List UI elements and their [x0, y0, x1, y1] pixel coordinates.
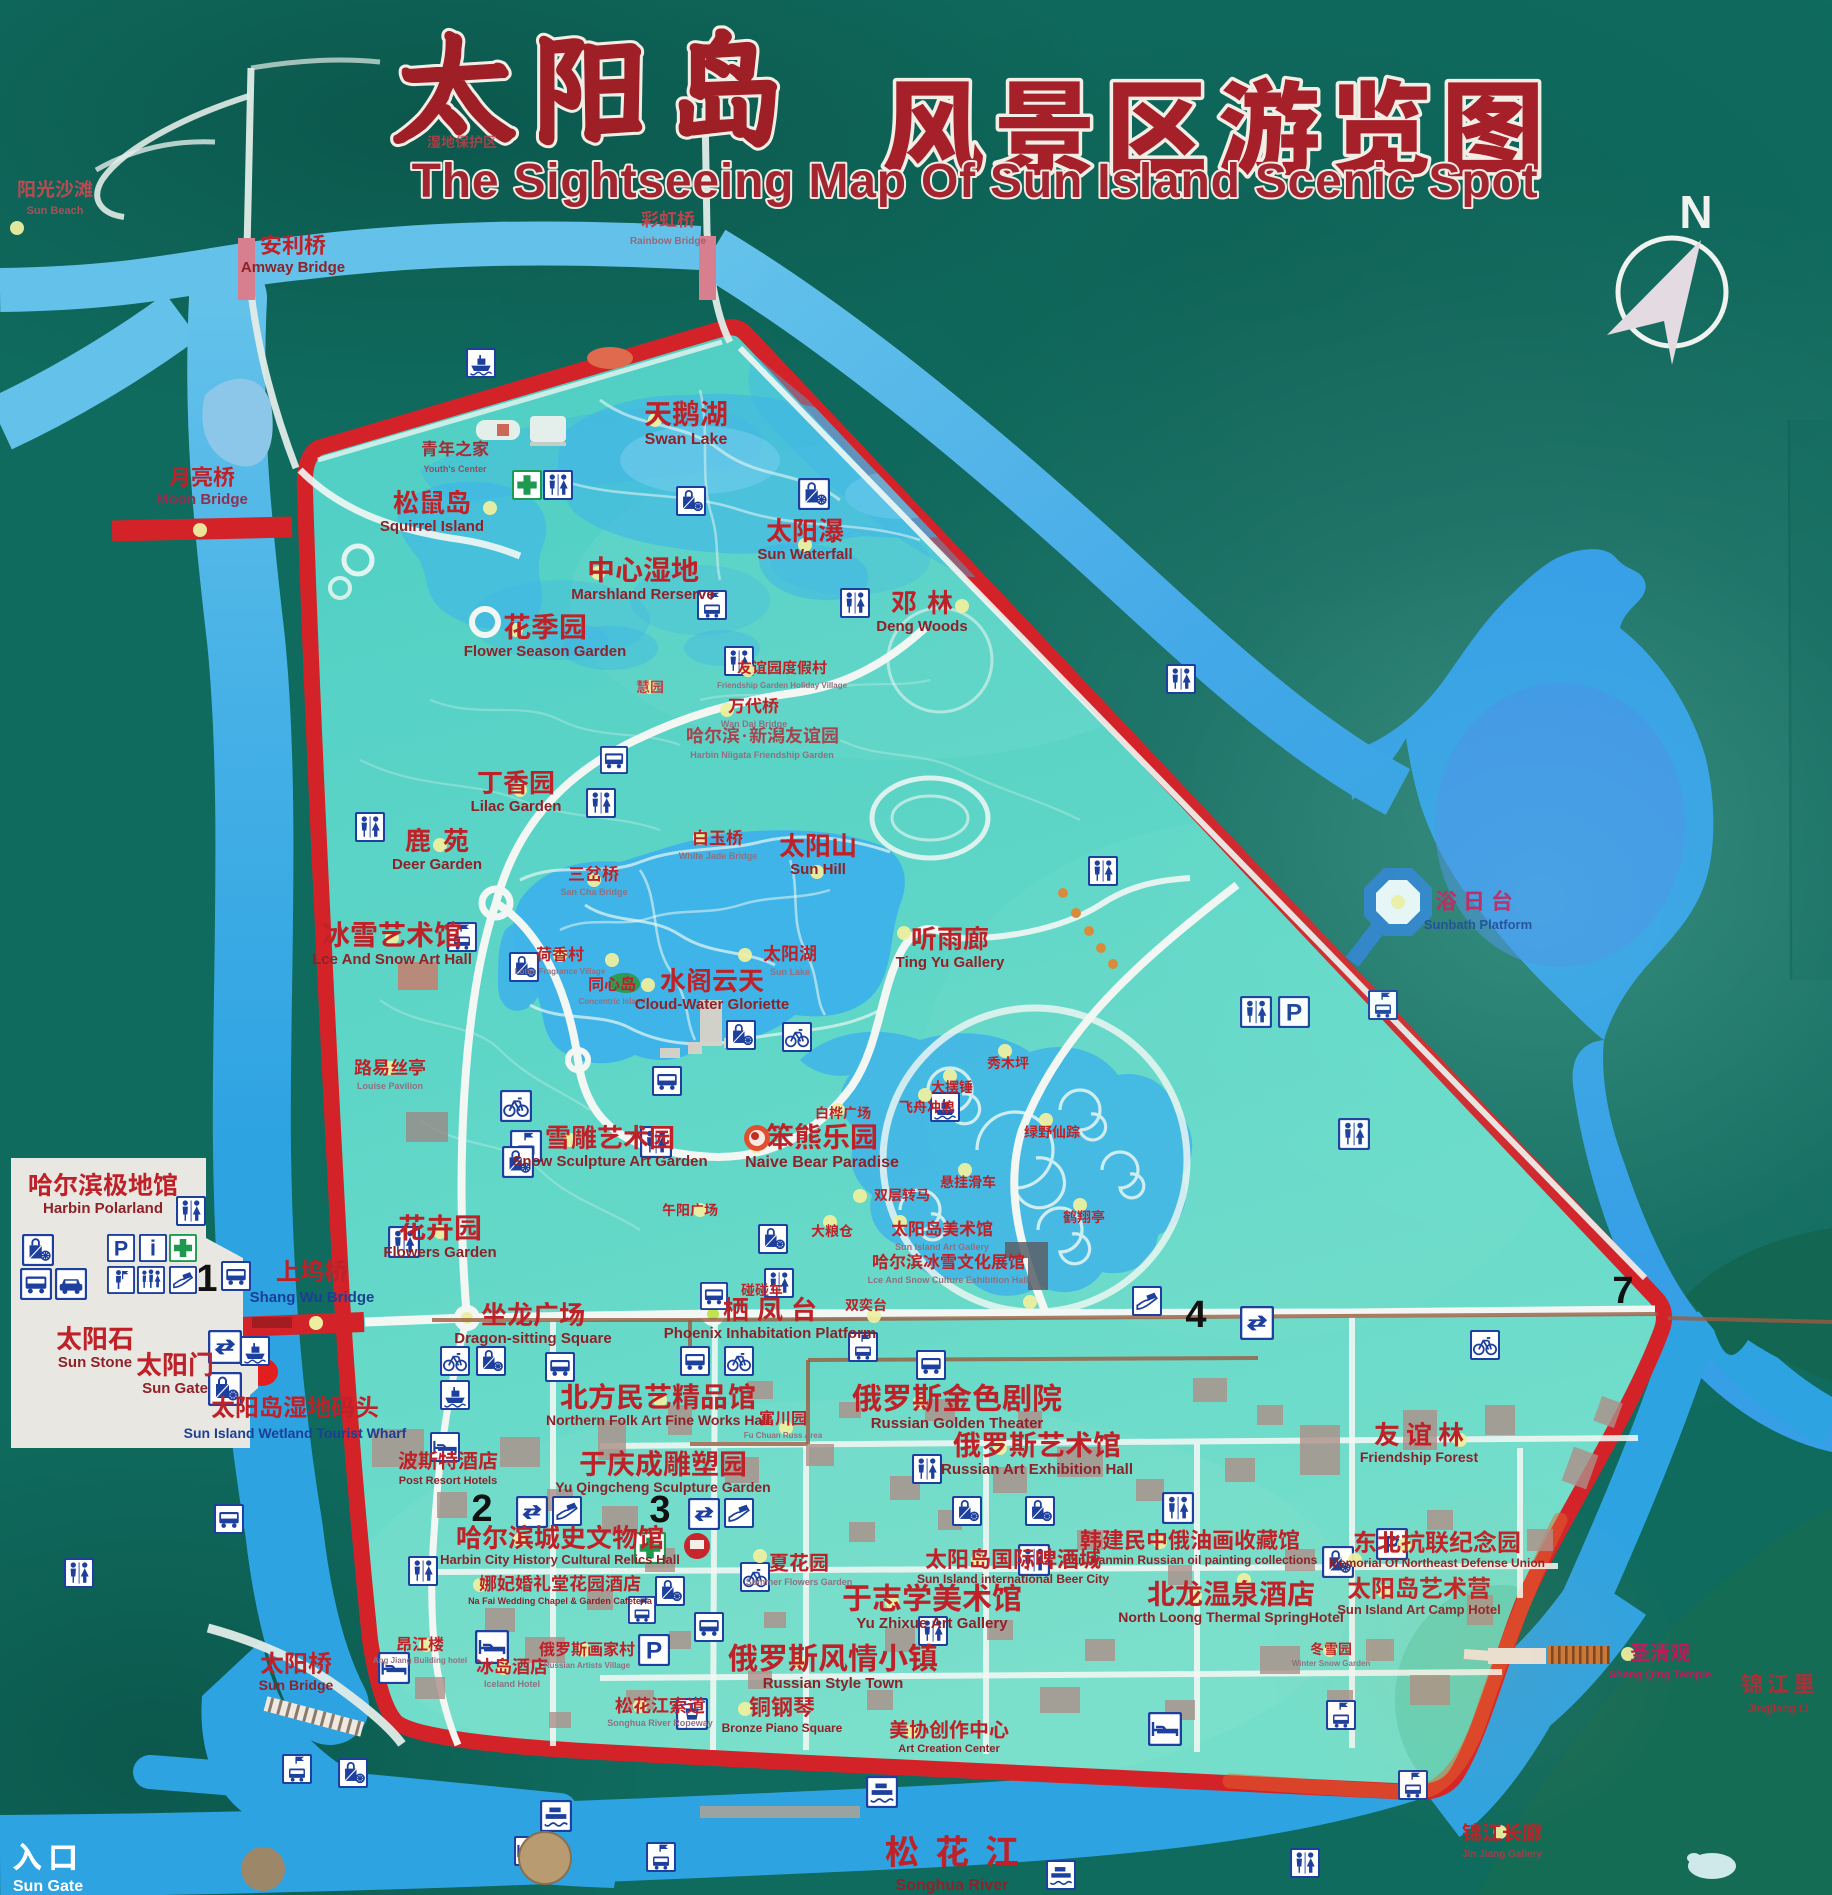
svg-text:Lotus Fragrance Village: Lotus Fragrance Village [515, 967, 606, 976]
svg-text:Sun Bridge: Sun Bridge [259, 1677, 334, 1693]
svg-text:Phoenix Inhabitation Platform: Phoenix Inhabitation Platform [664, 1325, 877, 1342]
svg-text:Yu Zhixue Art Gallery: Yu Zhixue Art Gallery [856, 1615, 1008, 1632]
svg-text:Na Fai Wedding Chapel & Garden: Na Fai Wedding Chapel & Garden Cafeteria [468, 1596, 653, 1606]
svg-text:Northern Folk Art Fine Works H: Northern Folk Art Fine Works Hall [546, 1412, 770, 1428]
svg-text:Russian Golden Theater: Russian Golden Theater [871, 1415, 1044, 1432]
svg-text:Deng Woods: Deng Woods [876, 618, 967, 635]
svg-text:Lce And Snow Culture Exhibitio: Lce And Snow Culture Exhibition Hall [868, 1275, 1029, 1285]
svg-text:Han Jianmin Russian oil painti: Han Jianmin Russian oil painting collect… [1063, 1553, 1318, 1567]
svg-text:Sun Hill: Sun Hill [790, 861, 846, 878]
svg-text:Harbin City History Cultural R: Harbin City History Cultural Relics Hall [440, 1552, 680, 1567]
svg-text:Jingjiang Li: Jingjiang Li [1747, 1703, 1808, 1715]
svg-text:Post Resort Hotels: Post Resort Hotels [399, 1475, 497, 1487]
svg-text:Harbin Niigata Friendship Gard: Harbin Niigata Friendship Garden [690, 750, 834, 760]
svg-text:Songhua River Ropeway: Songhua River Ropeway [607, 1718, 713, 1728]
svg-text:Amway Bridge: Amway Bridge [241, 259, 345, 276]
svg-text:3: 3 [649, 1489, 670, 1531]
svg-text:Dragon-sitting Square: Dragon-sitting Square [454, 1330, 612, 1347]
svg-text:Sun Lake: Sun Lake [770, 967, 810, 977]
svg-text:Sun Island Wetland Tourist Wha: Sun Island Wetland Tourist Wharf [184, 1425, 407, 1441]
svg-text:Summer Flowers Garden: Summer Flowers Garden [746, 1577, 853, 1587]
svg-text:Ting Yu Gallery: Ting Yu Gallery [896, 954, 1005, 971]
svg-text:Sun Waterfall: Sun Waterfall [757, 546, 852, 563]
svg-text:Marshland Rerserve: Marshland Rerserve [571, 586, 714, 603]
svg-text:Louise Pavilion: Louise Pavilion [357, 1081, 423, 1091]
svg-text:Friendship Garden Holiday Vill: Friendship Garden Holiday Village [717, 681, 848, 690]
svg-text:Flowers Garden: Flowers Garden [383, 1244, 496, 1261]
svg-text:Russian Artists Village: Russian Artists Village [544, 1661, 631, 1670]
svg-text:Iceland Hotel: Iceland Hotel [484, 1679, 540, 1689]
svg-text:7: 7 [1612, 1270, 1633, 1312]
svg-text:Lilac Garden: Lilac Garden [471, 798, 562, 815]
svg-text:N: N [1679, 186, 1712, 238]
svg-text:Flower Season Garden: Flower Season Garden [464, 643, 627, 660]
svg-text:2: 2 [471, 1488, 492, 1530]
svg-text:Russian Art Exhibition Hall: Russian Art Exhibition Hall [941, 1461, 1133, 1478]
svg-text:Art Creation Center: Art Creation Center [898, 1743, 1000, 1755]
svg-text:Sun Beach: Sun Beach [27, 205, 84, 217]
svg-text:Swan Lake: Swan Lake [645, 431, 728, 448]
svg-text:Shang Wu Bridge: Shang Wu Bridge [250, 1289, 375, 1306]
svg-text:Sun Island Art Gallery: Sun Island Art Gallery [895, 1242, 989, 1252]
svg-text:Ang Jiang Building hotel: Ang Jiang Building hotel [373, 1656, 467, 1665]
svg-text:Harbin Polarland: Harbin Polarland [43, 1200, 163, 1217]
svg-text:4: 4 [1185, 1294, 1206, 1336]
svg-text:Sun Gate: Sun Gate [142, 1380, 208, 1397]
svg-text:Youth's Center: Youth's Center [424, 464, 487, 474]
svg-text:Sun Gate: Sun Gate [13, 1878, 83, 1895]
svg-text:Lce And Snow Art Hall: Lce And Snow Art Hall [312, 951, 472, 968]
svg-text:White Jade Bridge: White Jade Bridge [679, 851, 758, 861]
svg-text:Fu Chuan Russ Area: Fu Chuan Russ Area [744, 1431, 823, 1440]
svg-text:The Sightseeing Map Of Sun Isl: The Sightseeing Map Of Sun Island Scenic… [412, 155, 1539, 208]
svg-text:Moon Bridge: Moon Bridge [156, 491, 248, 508]
svg-text:Snow Sculpture Art Garden: Snow Sculpture Art Garden [512, 1153, 707, 1170]
svg-text:Naive Bear Paradise: Naive Bear Paradise [745, 1154, 899, 1171]
svg-text:Songhua River: Songhua River [896, 1877, 1009, 1894]
svg-text:Sun Stone: Sun Stone [58, 1354, 132, 1371]
svg-text:Cloud-Water Gloriette: Cloud-Water Gloriette [635, 996, 789, 1013]
svg-text:Rainbow Bridge: Rainbow Bridge [630, 236, 707, 247]
svg-text:Squirrel Island: Squirrel Island [380, 518, 484, 535]
svg-text:Friendship Forest: Friendship Forest [1360, 1449, 1479, 1465]
svg-text:Russian Style Town: Russian Style Town [763, 1675, 904, 1692]
svg-text:1: 1 [196, 1258, 217, 1300]
svg-text:Deer Garden: Deer Garden [392, 856, 482, 873]
svg-text:Jin Jiang Gallery: Jin Jiang Gallery [1462, 1849, 1542, 1860]
svg-text:San Cha Bridge: San Cha Bridge [560, 887, 627, 897]
svg-text:Bronze Piano Square: Bronze Piano Square [722, 1721, 843, 1735]
